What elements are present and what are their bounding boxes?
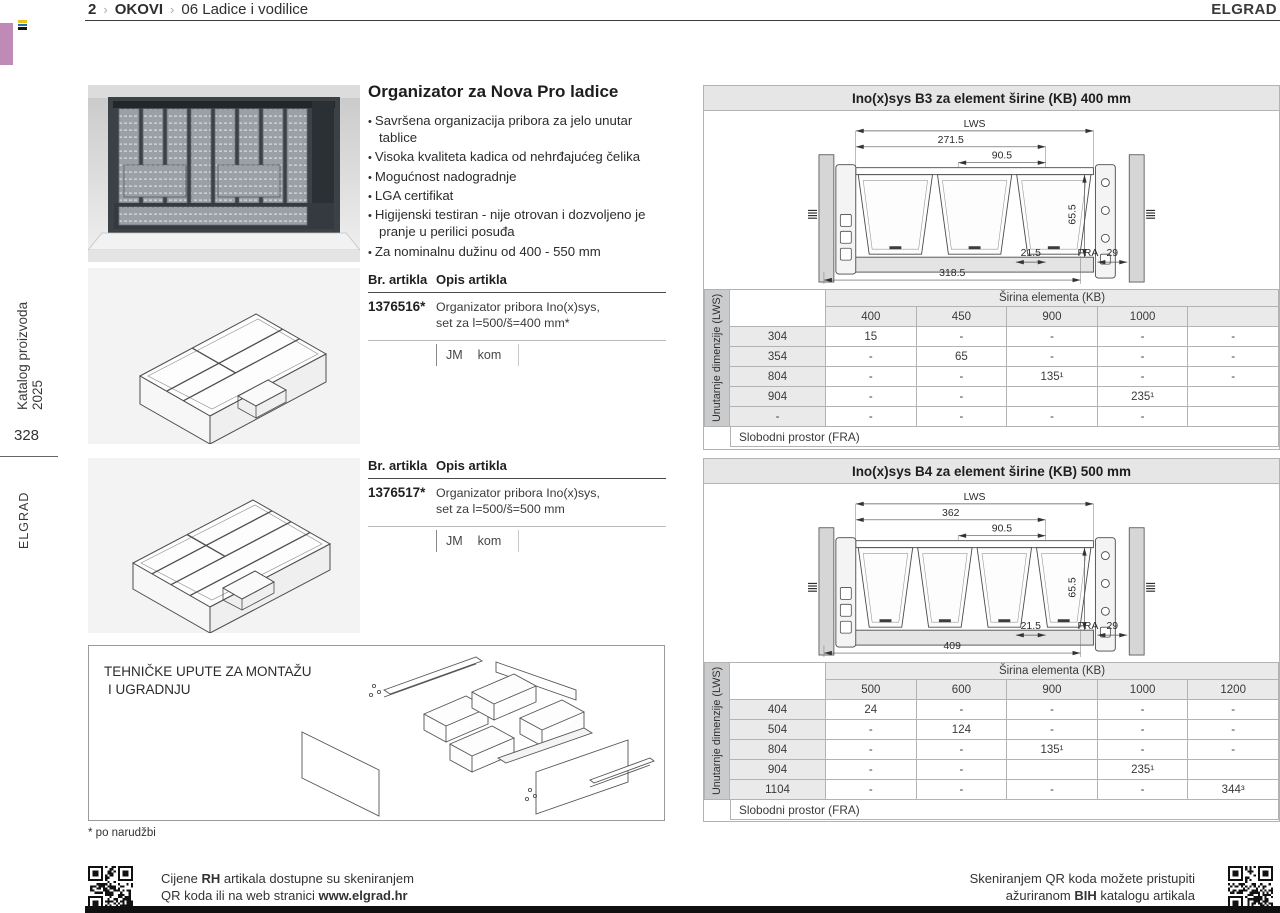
dimension-label: 362 <box>942 508 960 519</box>
organizer-line-drawing-2 <box>88 458 360 633</box>
footer-note-left: Cijene RH artikala dostupne su skeniranj… <box>161 870 414 904</box>
table-value-cell: - <box>1188 740 1279 760</box>
table-value-cell: - <box>1098 700 1189 720</box>
article-description: Organizator pribora Ino(x)sys, set za l=… <box>436 299 600 331</box>
table-row-label: 504 <box>730 720 826 740</box>
table-corner-cell <box>730 662 826 700</box>
cabinet-side-panel <box>819 155 834 282</box>
article-block-1: Br. artikla Opis artikla 1376516* Organi… <box>368 272 666 366</box>
table-value-cell: 65 <box>917 347 1008 367</box>
breadcrumb: 2›OKOVI›06 Ladice i vodilice <box>88 1 308 18</box>
unit-value: kom <box>478 348 502 362</box>
feature-list: Savršena organizacija pribora za jelo un… <box>368 113 670 263</box>
table-value-cell: - <box>826 347 917 367</box>
table-value-cell: - <box>1098 367 1189 387</box>
table-value-cell: - <box>826 780 917 800</box>
technical-instructions-title: TEHNIČKE UPUTE ZA MONTAŽU I UGRADNJU <box>104 663 312 699</box>
table-value-cell: - <box>826 720 917 740</box>
unit-value: kom <box>478 534 502 548</box>
dimension-label: 21.5 <box>1021 621 1042 632</box>
color-stripe <box>18 20 27 23</box>
table-column-header: 1000 <box>1098 680 1189 700</box>
table-value-cell: 235¹ <box>1098 760 1189 780</box>
article-number: 1376516* <box>368 299 436 331</box>
breadcrumb-section: OKOVI <box>115 1 163 18</box>
dimension-label: 29 <box>1107 248 1119 259</box>
table-value-cell <box>1007 760 1098 780</box>
unit-box: JM kom <box>436 530 519 552</box>
dimension-label: 65.5 <box>1068 577 1079 598</box>
cross-section-drawing-b4: LWS36290.565.540921.5FRA29 <box>704 484 1279 662</box>
table-column-header: 1200 <box>1188 680 1279 700</box>
color-stripe <box>18 24 27 27</box>
order-footnote: * po narudžbi <box>88 827 156 839</box>
table-value-cell: 135¹ <box>1007 740 1098 760</box>
table-row-label: 354 <box>730 347 826 367</box>
table-value-cell: - <box>1007 327 1098 347</box>
exploded-assembly-drawing <box>284 648 664 820</box>
article-col-desc: Opis artikla <box>436 272 507 287</box>
table-row-label: 804 <box>730 740 826 760</box>
cabinet-side-panel <box>819 528 834 655</box>
isometric-organizer-400 <box>88 268 360 444</box>
table-column-header: 1000 <box>1098 307 1189 327</box>
dimension-table-b4: Unutarnje dimenzije (LWS)Širina elementa… <box>704 662 1279 820</box>
table-side-label: Unutarnje dimenzije (LWS) <box>704 662 730 800</box>
article-block-2: Br. artikla Opis artikla 1376517* Organi… <box>368 458 666 552</box>
breadcrumb-chapter-title: Ladice i vodilice <box>202 1 308 18</box>
article-col-number: Br. artikla <box>368 458 436 473</box>
feature-item: LGA certifikat <box>368 188 670 205</box>
qr-code-rh <box>88 866 133 911</box>
dimension-label: FRA <box>1078 248 1099 259</box>
unit-label: JM <box>446 534 463 548</box>
table-side-label: Unutarnje dimenzije (LWS) <box>704 289 730 427</box>
color-mark-icon <box>18 20 27 31</box>
drawer-rim <box>856 541 1094 548</box>
dimension-label: 409 <box>944 641 962 652</box>
chevron-right-icon: › <box>96 2 114 17</box>
table-group-header: Širina elementa (KB) <box>826 289 1279 307</box>
unit-box: JM kom <box>436 344 519 366</box>
table-value-cell: - <box>917 367 1008 387</box>
cutlery-tray <box>918 548 972 628</box>
panel-inoxsys-b4: Ino(x)sys B4 za element širine (KB) 500 … <box>703 458 1280 822</box>
dimension-table-b3: Unutarnje dimenzije (LWS)Širina elementa… <box>704 289 1279 447</box>
dimension-label: 29 <box>1107 621 1119 632</box>
cutlery-tray <box>858 548 912 628</box>
isometric-organizer-500 <box>88 458 360 633</box>
table-value-cell: - <box>1188 720 1279 740</box>
cutlery-tray <box>977 548 1031 628</box>
table-value-cell: - <box>826 760 917 780</box>
table-column-header: 400 <box>826 307 917 327</box>
cabinet-side-panel <box>1129 155 1144 282</box>
table-value-cell: - <box>1098 720 1189 740</box>
footer-note-right: Skeniranjem QR koda možete pristupitiažu… <box>970 870 1195 904</box>
dimension-label: 318.5 <box>939 268 965 279</box>
article-row: 1376516* Organizator pribora Ino(x)sys, … <box>368 293 666 341</box>
sidebar-divider <box>0 456 58 457</box>
breadcrumb-chapter-no: 06 <box>181 1 198 18</box>
feature-item: Higijenski testiran - nije otrovan i doz… <box>368 207 670 241</box>
dimension-label: 90.5 <box>992 524 1013 535</box>
page-number: 328 <box>14 427 39 444</box>
table-value-cell: - <box>1007 720 1098 740</box>
table-value-cell: - <box>1007 347 1098 367</box>
sidebar-brand: ELGRAD <box>17 487 31 549</box>
table-value-cell: - <box>1188 367 1279 387</box>
table-value-cell: 24 <box>826 700 917 720</box>
header-rule <box>85 20 1280 21</box>
cabinet-side-panel <box>1129 528 1144 655</box>
table-column-header: 500 <box>826 680 917 700</box>
feature-item: Mogućnost nadogradnje <box>368 169 670 186</box>
article-description: Organizator pribora Ino(x)sys, set za l=… <box>436 485 600 517</box>
table-column-header: 900 <box>1007 307 1098 327</box>
table-row-label: 904 <box>730 760 826 780</box>
table-value-cell: - <box>917 700 1008 720</box>
organizer-line-drawing-1 <box>88 268 360 444</box>
dimension-label: 271.5 <box>938 135 964 146</box>
table-value-cell: 235¹ <box>1098 387 1189 407</box>
table-value-cell: 344³ <box>1188 780 1279 800</box>
table-column-header: 450 <box>917 307 1008 327</box>
feature-item: Visoka kvaliteta kadica od nehrđajućeg č… <box>368 149 670 166</box>
table-value-cell: - <box>1007 700 1098 720</box>
table-value-cell: - <box>1098 327 1189 347</box>
table-value-cell <box>1188 760 1279 780</box>
article-col-number: Br. artikla <box>368 272 436 287</box>
drawer-rim <box>856 168 1094 175</box>
dimension-label: 65.5 <box>1068 204 1079 225</box>
drawer-bottom <box>842 257 1094 272</box>
product-title: Organizator za Nova Pro ladice <box>368 82 618 102</box>
cutlery-tray <box>937 175 1011 255</box>
table-value-cell: - <box>1007 407 1098 427</box>
dimension-label: 90.5 <box>992 151 1013 162</box>
table-value-cell: - <box>1188 347 1279 367</box>
table-value-cell: - <box>1098 347 1189 367</box>
table-value-cell: - <box>826 387 917 407</box>
brand-logo-text: ELGRAD <box>1211 1 1277 18</box>
table-value-cell: - <box>826 367 917 387</box>
article-col-desc: Opis artikla <box>436 458 507 473</box>
table-row-label: 1104 <box>730 780 826 800</box>
cross-section-drawing-b3: LWS271.590.565.5318.521.5FRA29 <box>704 111 1279 289</box>
qr-code-bih <box>1228 866 1273 911</box>
dimension-label: LWS <box>964 492 986 503</box>
table-row-label: 904 <box>730 387 826 407</box>
article-number: 1376517* <box>368 485 436 517</box>
table-value-cell: - <box>826 740 917 760</box>
table-column-header <box>1188 307 1279 327</box>
feature-item: Za nominalnu dužinu od 400 - 550 mm <box>368 244 670 261</box>
table-value-cell: - <box>1188 327 1279 347</box>
table-value-cell: - <box>1188 700 1279 720</box>
article-row: 1376517* Organizator pribora Ino(x)sys, … <box>368 479 666 527</box>
table-value-cell: - <box>917 407 1008 427</box>
table-value-cell <box>1007 387 1098 407</box>
cutlery-tray <box>1017 175 1091 255</box>
table-footer-label: Slobodni prostor (FRA) <box>730 800 1279 820</box>
panel-inoxsys-b3: Ino(x)sys B3 za element širine (KB) 400 … <box>703 85 1280 450</box>
table-column-header: 900 <box>1007 680 1098 700</box>
chevron-right-icon: › <box>163 2 181 17</box>
dimension-label: FRA <box>1078 621 1099 632</box>
table-value-cell: - <box>1007 780 1098 800</box>
sidebar-catalog-title: Katalog proizvoda 2025 <box>15 276 45 410</box>
table-row-label: 304 <box>730 327 826 347</box>
page-bottom-bar <box>85 906 1280 913</box>
table-footer-label: Slobodni prostor (FRA) <box>730 427 1279 447</box>
panel-title: Ino(x)sys B3 za element širine (KB) 400 … <box>704 86 1279 111</box>
table-value-cell: - <box>917 387 1008 407</box>
table-value-cell: - <box>917 780 1008 800</box>
table-value-cell: 15 <box>826 327 917 347</box>
table-value-cell: - <box>917 760 1008 780</box>
table-row-label: - <box>730 407 826 427</box>
feature-item: Savršena organizacija pribora za jelo un… <box>368 113 670 147</box>
table-value-cell: 124 <box>917 720 1008 740</box>
cutlery-tray <box>858 175 932 255</box>
table-value-cell: - <box>1098 740 1189 760</box>
panel-title: Ino(x)sys B4 za element širine (KB) 500 … <box>704 459 1279 484</box>
technical-instructions-box: TEHNIČKE UPUTE ZA MONTAŽU I UGRADNJU <box>88 645 665 821</box>
cutlery-tray <box>1036 548 1090 628</box>
table-value-cell: - <box>826 407 917 427</box>
product-photo-drawer-organizer <box>88 85 360 262</box>
chapter-color-tab <box>0 23 13 65</box>
table-column-header: 600 <box>917 680 1008 700</box>
table-value-cell <box>1188 387 1279 407</box>
table-corner-cell <box>730 289 826 327</box>
unit-label: JM <box>446 348 463 362</box>
table-value-cell: - <box>1098 407 1189 427</box>
table-group-header: Širina elementa (KB) <box>826 662 1279 680</box>
table-value-cell: - <box>1098 780 1189 800</box>
drawer-bottom <box>842 630 1094 645</box>
table-value-cell: 135¹ <box>1007 367 1098 387</box>
table-value-cell: - <box>917 327 1008 347</box>
catalog-page: 2›OKOVI›06 Ladice i vodilice ELGRAD Kata… <box>0 0 1280 913</box>
dimension-label: LWS <box>964 119 986 130</box>
table-value-cell: - <box>917 740 1008 760</box>
color-stripe <box>18 27 27 30</box>
table-row-label: 804 <box>730 367 826 387</box>
table-value-cell <box>1188 407 1279 427</box>
table-row-label: 404 <box>730 700 826 720</box>
dimension-label: 21.5 <box>1021 248 1042 259</box>
